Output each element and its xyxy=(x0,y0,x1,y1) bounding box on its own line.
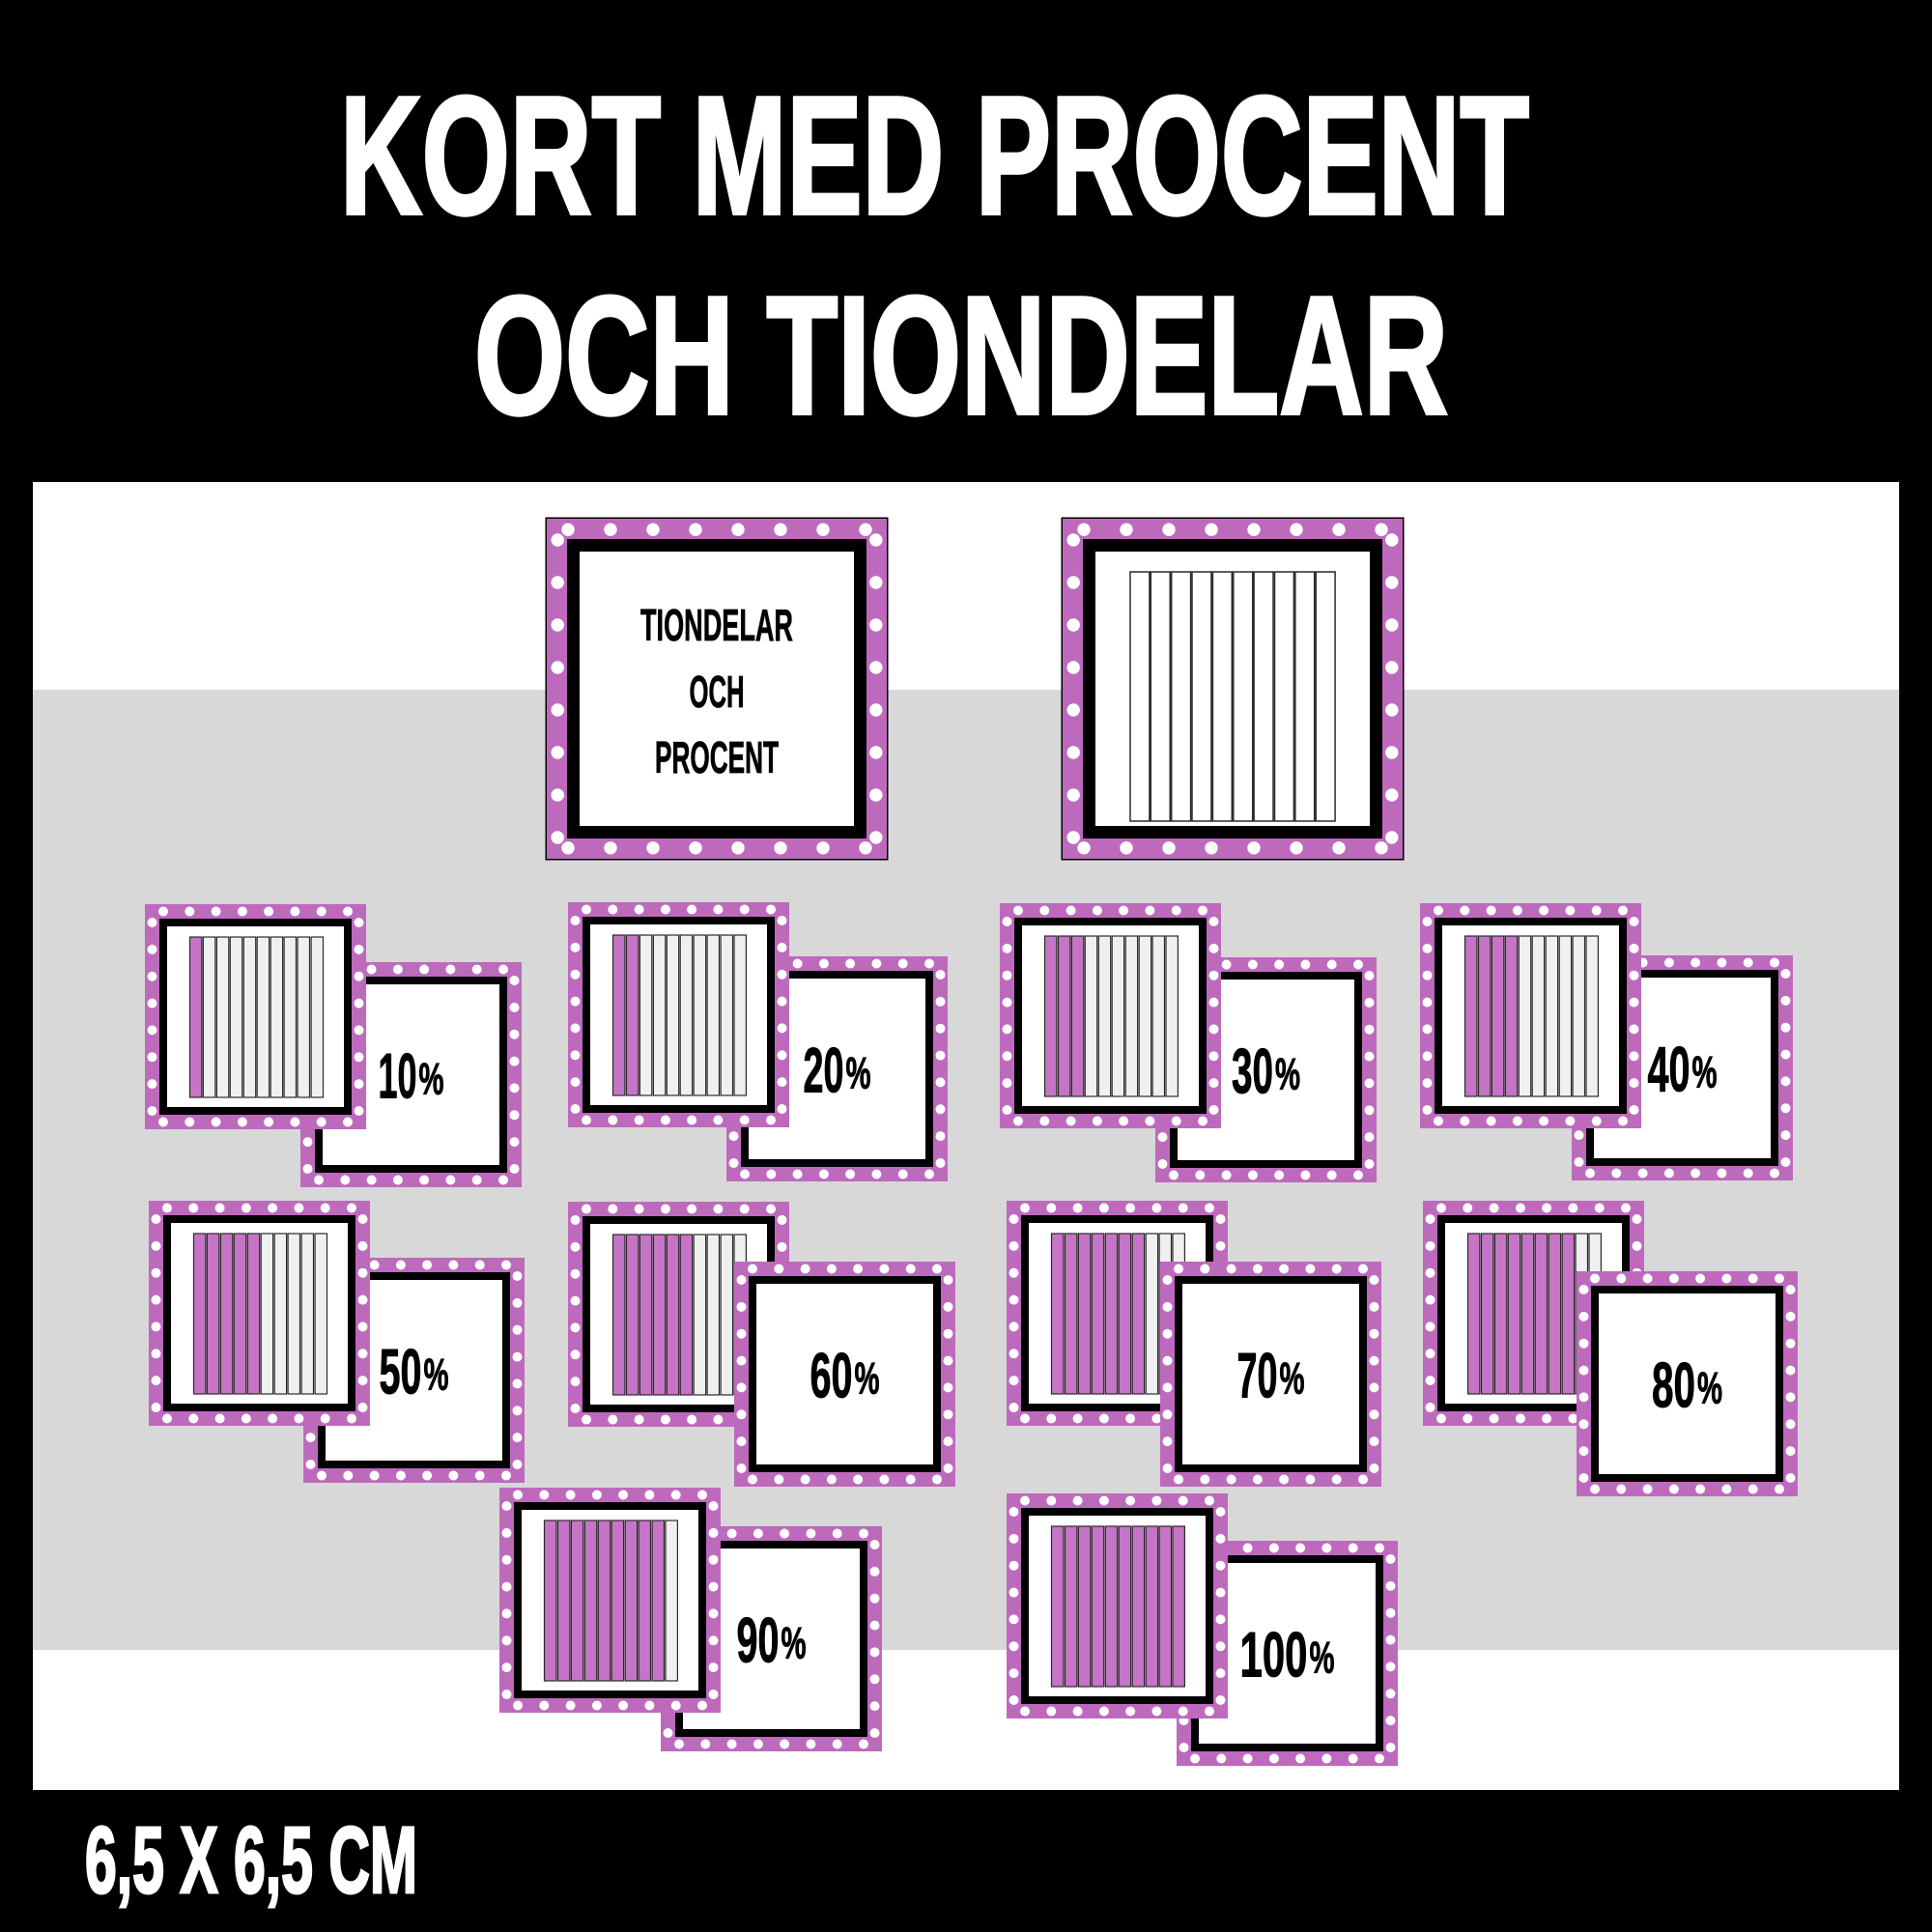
svg-text:10: 10 xyxy=(379,1040,417,1112)
svg-text:%: % xyxy=(1310,1633,1335,1683)
svg-text:6,5 X 6,5 CM: 6,5 X 6,5 CM xyxy=(85,1807,417,1913)
svg-text:%: % xyxy=(1275,1049,1300,1099)
svg-text:30: 30 xyxy=(1232,1036,1273,1107)
svg-text:KORT MED PROCENT: KORT MED PROCENT xyxy=(340,61,1529,249)
svg-text:20: 20 xyxy=(804,1035,844,1106)
svg-text:OCH: OCH xyxy=(690,667,745,717)
svg-text:70: 70 xyxy=(1237,1340,1278,1411)
svg-text:%: % xyxy=(1692,1047,1718,1097)
svg-text:%: % xyxy=(424,1350,449,1400)
svg-text:50: 50 xyxy=(380,1336,422,1407)
svg-text:TIONDELAR: TIONDELAR xyxy=(640,600,793,650)
svg-text:OCH TIONDELAR: OCH TIONDELAR xyxy=(474,261,1448,449)
svg-text:%: % xyxy=(781,1618,807,1668)
svg-text:40: 40 xyxy=(1648,1034,1690,1105)
svg-text:%: % xyxy=(1697,1363,1722,1413)
svg-text:90: 90 xyxy=(737,1605,780,1676)
svg-text:%: % xyxy=(846,1048,871,1098)
svg-text:%: % xyxy=(1280,1353,1305,1404)
svg-text:100: 100 xyxy=(1240,1619,1308,1690)
svg-text:%: % xyxy=(855,1353,880,1404)
svg-text:%: % xyxy=(419,1054,444,1104)
svg-text:PROCENT: PROCENT xyxy=(655,732,779,782)
svg-text:60: 60 xyxy=(810,1340,853,1411)
svg-text:80: 80 xyxy=(1652,1350,1695,1421)
